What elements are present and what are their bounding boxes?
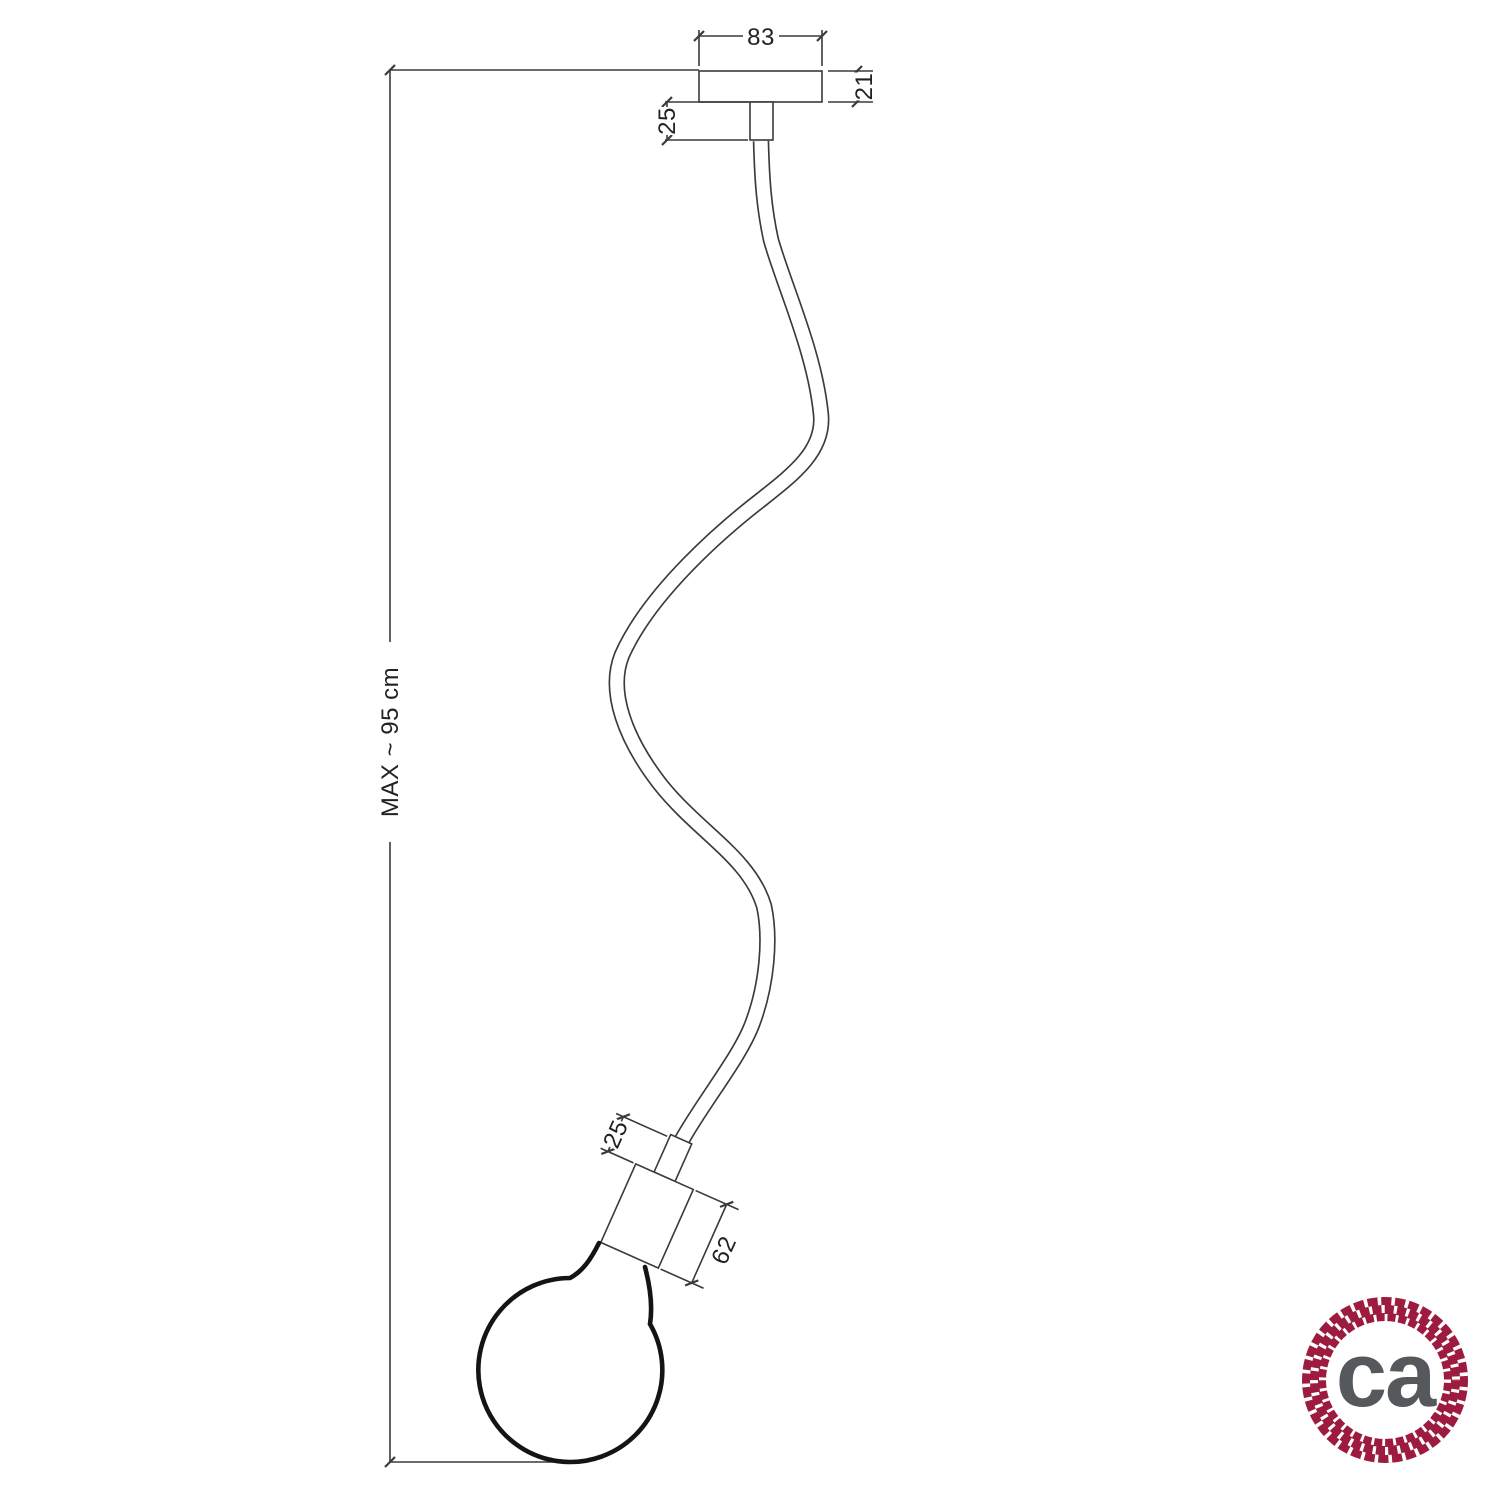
ceiling-canopy (699, 71, 822, 140)
lamp-socket-assembly: 62 25 (559, 1107, 772, 1300)
technical-drawing-page: MAX ~ 95 cm 83 21 25 (0, 0, 1500, 1500)
dim-canopy-width: 83 (694, 24, 827, 66)
top-nipple-label: 25 (654, 107, 681, 135)
max-drop-label: MAX ~ 95 cm (377, 667, 404, 817)
canopy-width-label: 83 (747, 24, 775, 51)
socket-body (601, 1164, 694, 1268)
globe-bulb-outline (478, 1243, 662, 1462)
canopy-height-label: 21 (851, 73, 878, 101)
canopy-nipple (750, 102, 773, 140)
dim-top-nipple: 25 (654, 97, 748, 145)
canopy-body (699, 71, 822, 102)
dim-canopy-height: 21 (828, 66, 878, 107)
socket-collar-label: 25 (598, 1116, 634, 1152)
flexible-stem (617, 141, 821, 1140)
tube-fill (617, 141, 821, 1140)
pendant-lamp-dimension-diagram: MAX ~ 95 cm 83 21 25 (0, 0, 1500, 1500)
logo-text: ca (1336, 1324, 1437, 1426)
brand-logo: ca (1306, 1301, 1464, 1459)
